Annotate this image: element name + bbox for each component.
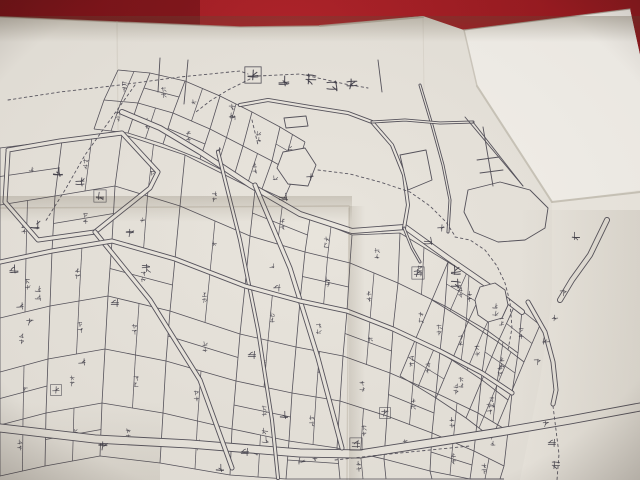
photo-of-hand-drawn-map: [0, 0, 640, 480]
map-photo-svg: [0, 0, 640, 480]
photo-vignette: [0, 0, 640, 480]
